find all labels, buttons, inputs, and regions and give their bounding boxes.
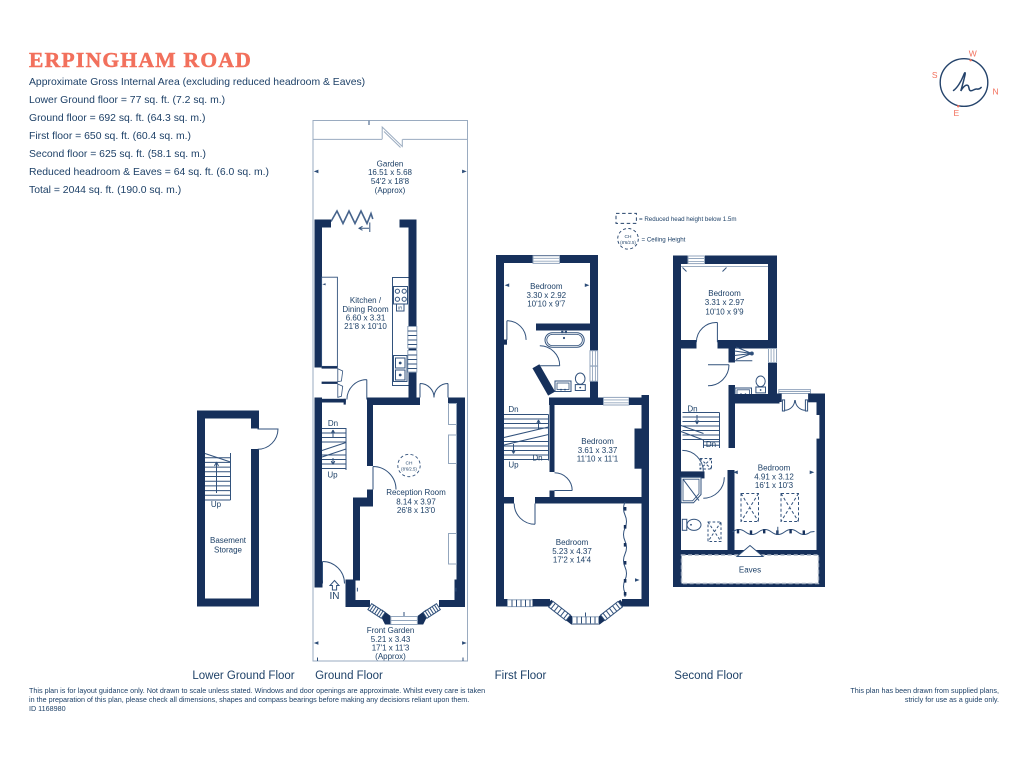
svg-text:Bedroom: Bedroom <box>556 538 589 547</box>
svg-text:Front Garden: Front Garden <box>367 626 415 635</box>
svg-text:Reduced headroom & Eaves = 64: Reduced headroom & Eaves = 64 sq. ft. (6… <box>29 167 269 178</box>
svg-text:Second Floor: Second Floor <box>674 670 743 682</box>
svg-text:26'8 x 13'0: 26'8 x 13'0 <box>397 506 436 515</box>
svg-text:Up: Up <box>211 500 222 509</box>
svg-text:Garden: Garden <box>377 159 404 168</box>
svg-text:Dining Room: Dining Room <box>342 305 389 314</box>
svg-text:ERPINGHAM ROAD: ERPINGHAM ROAD <box>29 48 252 72</box>
svg-text:= Reduced head height below 1.: = Reduced head height below 1.5m <box>639 216 737 223</box>
svg-text:(8'6/2.5): (8'6/2.5) <box>620 240 636 245</box>
svg-text:10'10 x 9'9: 10'10 x 9'9 <box>705 307 744 316</box>
svg-text:4.91 x 3.12: 4.91 x 3.12 <box>754 472 794 481</box>
svg-text:Bedroom: Bedroom <box>708 289 741 298</box>
svg-text:Dn: Dn <box>706 440 716 449</box>
svg-text:21'8 x 10'10: 21'8 x 10'10 <box>344 322 387 331</box>
svg-text:S: S <box>932 70 938 80</box>
svg-text:Lower Ground floor = 77 sq. ft: Lower Ground floor = 77 sq. ft. (7.2 sq.… <box>29 95 225 106</box>
svg-text:10'10 x 9'7: 10'10 x 9'7 <box>527 299 566 308</box>
svg-text:Ground Floor: Ground Floor <box>315 670 383 682</box>
svg-text:Reception Room: Reception Room <box>386 488 446 497</box>
svg-text:IN: IN <box>330 591 340 602</box>
svg-text:(Approx): (Approx) <box>375 652 406 661</box>
svg-text:First floor = 650 sq. ft. (60.: First floor = 650 sq. ft. (60.4 sq. m.) <box>29 131 191 142</box>
svg-text:54'2 x 18'8: 54'2 x 18'8 <box>371 177 410 186</box>
svg-text:First Floor: First Floor <box>495 670 547 682</box>
svg-text:16'1 x 10'3: 16'1 x 10'3 <box>755 481 794 490</box>
svg-text:This plan has been drawn from: This plan has been drawn from supplied p… <box>850 686 999 695</box>
svg-text:N: N <box>993 86 999 96</box>
svg-text:Storage: Storage <box>214 546 243 555</box>
svg-text:W: W <box>969 49 977 59</box>
svg-text:stricly for use as a guide onl: stricly for use as a guide only. <box>905 695 999 704</box>
svg-text:17'2 x 14'4: 17'2 x 14'4 <box>553 555 592 564</box>
svg-text:Bedroom: Bedroom <box>530 282 563 291</box>
svg-text:Second floor = 625 sq. ft. (5: Second floor = 625 sq. ft. (58.1 sq. m.) <box>29 149 206 160</box>
svg-text:6.60 x 3.31: 6.60 x 3.31 <box>346 314 386 323</box>
svg-text:E: E <box>953 108 959 118</box>
svg-text:3.31 x 2.97: 3.31 x 2.97 <box>705 298 745 307</box>
svg-text:Eaves: Eaves <box>739 566 761 575</box>
svg-text:16.51 x 5.68: 16.51 x 5.68 <box>368 168 413 177</box>
svg-text:Up: Up <box>508 461 519 470</box>
svg-text:Dn: Dn <box>687 405 697 414</box>
svg-text:Ground floor = 692 sq. ft. (64: Ground floor = 692 sq. ft. (64.3 sq. m.) <box>29 113 205 124</box>
svg-text:in the preparation of this pla: in the preparation of this plan, please … <box>29 695 469 704</box>
svg-text:(8'6/2.5): (8'6/2.5) <box>401 466 417 471</box>
svg-text:IR: IR <box>398 306 402 311</box>
svg-text:ID 1168980: ID 1168980 <box>29 704 66 713</box>
svg-text:Bedroom: Bedroom <box>758 464 791 473</box>
svg-text:Dn: Dn <box>328 419 338 428</box>
svg-text:Total = 2044 sq. ft. (190.0 s: Total = 2044 sq. ft. (190.0 sq. m.) <box>29 185 181 196</box>
svg-text:Basement: Basement <box>210 536 247 545</box>
svg-text:Approximate Gross Internal Are: Approximate Gross Internal Area (excludi… <box>29 77 365 88</box>
svg-text:= Ceiling Height: = Ceiling Height <box>642 236 686 243</box>
svg-text:(Approx): (Approx) <box>375 186 406 195</box>
svg-text:5.21 x 3.43: 5.21 x 3.43 <box>371 635 411 644</box>
svg-text:Dn: Dn <box>532 454 542 463</box>
svg-text:Dn: Dn <box>508 405 518 414</box>
svg-text:Lower Ground Floor: Lower Ground Floor <box>192 670 294 682</box>
svg-text:This plan is for layout guidan: This plan is for layout guidance only. N… <box>29 686 485 695</box>
svg-text:Up: Up <box>327 471 338 480</box>
svg-text:Kitchen /: Kitchen / <box>350 296 382 305</box>
svg-text:Bedroom: Bedroom <box>581 437 614 446</box>
svg-text:11'10 x 11'1: 11'10 x 11'1 <box>577 454 619 463</box>
